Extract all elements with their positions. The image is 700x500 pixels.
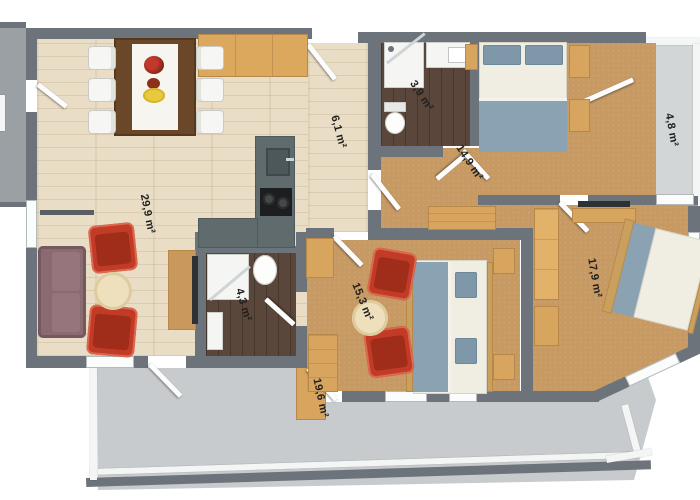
dining-chair xyxy=(196,46,224,70)
fruit-plate xyxy=(143,88,165,103)
washbasin xyxy=(448,47,466,63)
armchair-seat xyxy=(92,313,131,350)
bed xyxy=(479,42,567,152)
nightstand xyxy=(493,354,515,380)
wall xyxy=(477,391,599,402)
window-living-west xyxy=(26,200,37,248)
bed-blanket xyxy=(479,98,567,152)
bathroom-cabinet xyxy=(207,312,223,350)
wardrobe xyxy=(534,208,559,300)
sink-faucet xyxy=(286,158,294,161)
coffee-table xyxy=(94,272,132,310)
bed-pillow xyxy=(455,338,477,364)
bed-pillow xyxy=(483,45,521,65)
wall xyxy=(134,356,148,368)
kitchen-sink xyxy=(266,148,290,176)
kitchen-counter-l xyxy=(198,218,258,248)
armchair-seat xyxy=(370,335,408,371)
dining-chair xyxy=(88,46,116,70)
shower-head xyxy=(388,46,394,52)
wall xyxy=(521,240,533,391)
terrace-railing-west xyxy=(90,368,97,480)
flower-bouquet xyxy=(144,56,164,74)
dresser xyxy=(306,238,334,278)
wall xyxy=(186,356,307,368)
bed xyxy=(413,260,487,394)
armchair xyxy=(88,222,139,275)
toilet-tank xyxy=(384,102,406,112)
armchair-seat xyxy=(373,256,410,293)
toilet-bowl xyxy=(253,255,277,285)
radiator xyxy=(40,210,94,215)
wall xyxy=(26,28,37,80)
tv-screen xyxy=(578,201,630,207)
wall xyxy=(478,195,560,205)
dresser xyxy=(569,45,590,78)
armchair-seat xyxy=(95,231,132,266)
wall xyxy=(26,112,37,200)
cooktop xyxy=(260,188,292,216)
sofa xyxy=(38,246,86,338)
wall xyxy=(296,326,307,368)
floor-plan-canvas: 29,9 m² 6,1 m² 3,9 m² 14,9 m² 4,8 m² 17,… xyxy=(0,0,700,500)
bathroom-vanity xyxy=(426,42,470,68)
bed-pillow xyxy=(455,272,477,298)
toilet-bowl xyxy=(385,112,405,134)
wall xyxy=(0,202,26,207)
hallway-bench xyxy=(428,206,496,230)
sofa-cushion xyxy=(52,252,80,291)
nightstand xyxy=(493,248,515,274)
window-bedroom-north-east xyxy=(656,194,694,205)
wall xyxy=(26,356,86,368)
dining-chair xyxy=(196,110,224,134)
balcony-railing-right xyxy=(693,44,700,204)
bed-pillow xyxy=(525,45,563,65)
bed-blanket xyxy=(413,262,451,392)
dining-table xyxy=(114,38,196,136)
dining-chair xyxy=(88,78,116,102)
armchair xyxy=(366,247,418,302)
dining-chair xyxy=(196,78,224,102)
lowboard xyxy=(534,306,559,346)
burner xyxy=(277,197,289,209)
sofa-cushion xyxy=(52,293,80,332)
wall xyxy=(368,36,381,170)
wall xyxy=(381,146,443,157)
tv-screen xyxy=(192,256,198,324)
nightstand xyxy=(465,44,478,70)
window-left-outside xyxy=(0,95,5,131)
armchair xyxy=(86,304,138,358)
wall xyxy=(26,248,37,368)
toilet xyxy=(252,253,278,287)
toilet xyxy=(384,102,408,136)
dresser xyxy=(569,99,590,132)
dining-chair xyxy=(88,110,116,134)
window-living-south xyxy=(86,356,134,368)
wall xyxy=(342,391,385,402)
burner xyxy=(263,193,275,205)
wall xyxy=(0,22,26,28)
